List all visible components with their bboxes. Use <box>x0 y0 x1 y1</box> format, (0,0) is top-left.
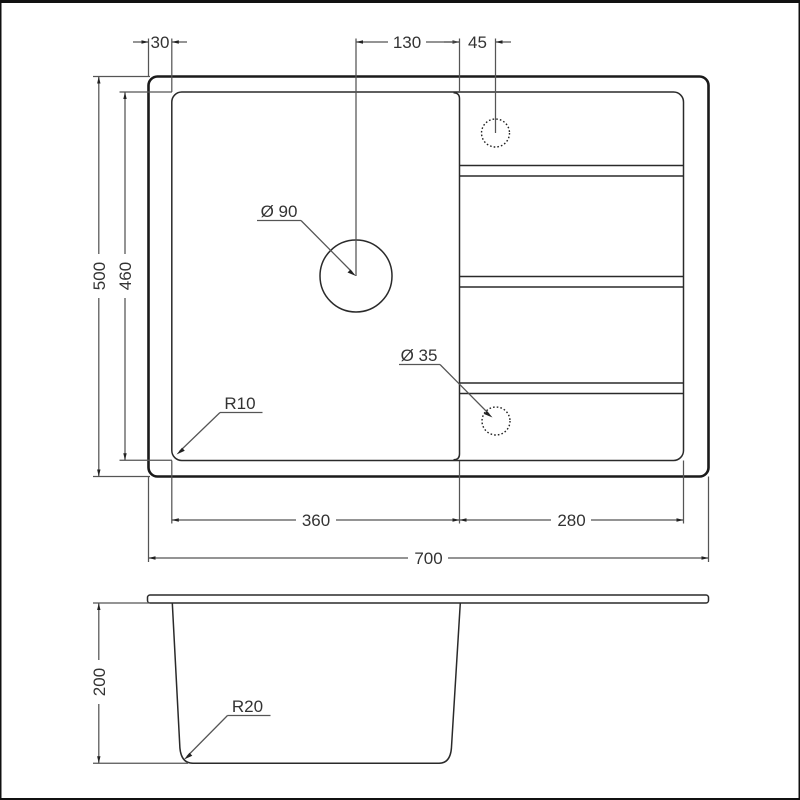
svg-text:280: 280 <box>557 511 585 530</box>
svg-text:45: 45 <box>468 33 487 52</box>
svg-text:130: 130 <box>393 33 421 52</box>
svg-text:200: 200 <box>90 668 109 696</box>
svg-text:500: 500 <box>90 262 109 290</box>
svg-text:460: 460 <box>116 262 135 290</box>
svg-text:700: 700 <box>414 549 442 568</box>
svg-text:30: 30 <box>151 33 170 52</box>
svg-text:360: 360 <box>302 511 330 530</box>
svg-text:Ø 90: Ø 90 <box>261 202 298 221</box>
svg-text:R20: R20 <box>232 697 263 716</box>
svg-text:Ø 35: Ø 35 <box>401 346 438 365</box>
svg-text:R10: R10 <box>224 394 255 413</box>
